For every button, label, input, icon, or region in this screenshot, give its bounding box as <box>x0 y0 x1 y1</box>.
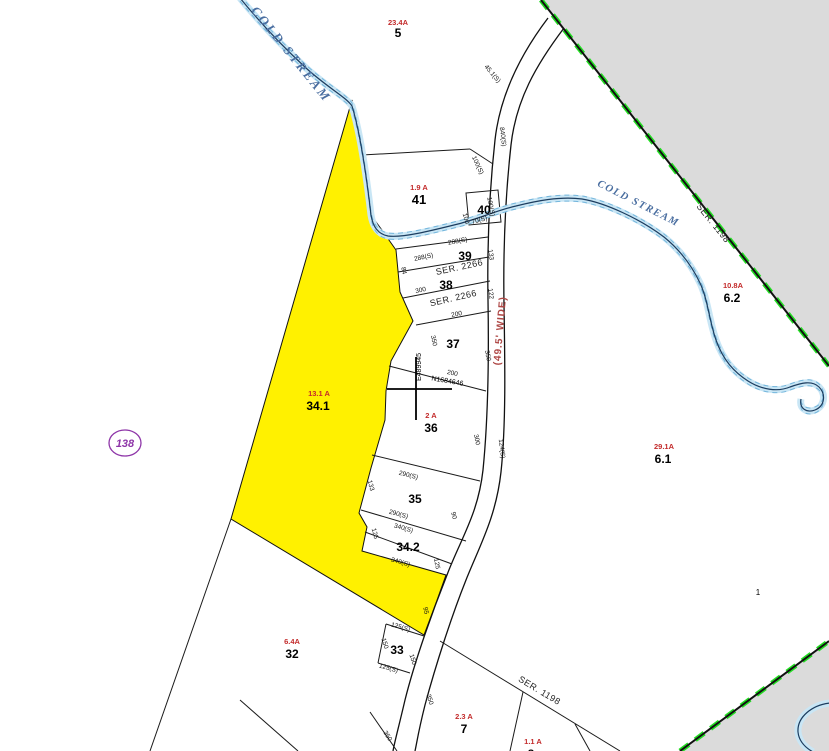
dimension-label: 84 <box>399 266 407 275</box>
dimension-label: 350 <box>429 335 438 347</box>
dimension-label: 350 <box>483 350 492 362</box>
dimension-label: 124(S) <box>497 439 506 459</box>
parcel-number: 34.1 <box>306 399 330 413</box>
parcel-number: 6.1 <box>655 452 672 466</box>
parcel-number: 36 <box>424 421 438 435</box>
parcel-number: 37 <box>446 337 460 351</box>
dimension-label: 133 <box>366 479 376 492</box>
parcel-number: 34.2 <box>396 540 420 554</box>
map-canvas: E489945 N1684646 138 COLD STREAM COLD ST… <box>0 0 829 751</box>
parcel-acreage: 2 A <box>425 411 437 420</box>
parcel-34.1-highlighted[interactable] <box>231 100 446 635</box>
parcel-number: 33 <box>390 643 404 657</box>
dimension-label: 300 <box>472 434 481 446</box>
parcel-number: 39 <box>458 249 472 263</box>
dimension-labels: 45.1(S) 840(S) 100(S) 100 70(S) 100(S) 2… <box>366 64 507 743</box>
parcel-number: 8 <box>528 747 535 751</box>
dimension-label: 150 <box>407 653 417 666</box>
parcel-number: 5 <box>395 26 402 40</box>
dimension-label: 45.1(S) <box>483 64 502 85</box>
parcel-acreage: 2.3 A <box>455 712 473 721</box>
map-sheet-number: 138 <box>116 438 135 450</box>
parcel-number: 38 <box>439 278 453 292</box>
parcel-acreage: 29.1A <box>654 442 675 451</box>
dimension-label: 288(S) <box>448 236 468 246</box>
parcel-number: 41 <box>412 192 426 207</box>
dimension-label: 350 <box>381 730 393 743</box>
dimension-label: 200 <box>446 369 458 378</box>
road-width-label: (49.5' WIDE) <box>492 296 509 366</box>
parcel-number: 6.2 <box>724 291 741 305</box>
dimension-label: 840(S) <box>498 127 507 147</box>
parcel-number: 1 <box>756 588 761 597</box>
parcel-number: 40 <box>477 203 491 217</box>
parcel-acreage: 1.1 A <box>524 737 542 746</box>
grid-easting-label: E489945 <box>416 353 423 381</box>
parcel-acreage: 10.8A <box>723 281 744 290</box>
dimension-label: 350 <box>424 693 434 706</box>
parcel-acreage: 13.1 A <box>308 389 330 398</box>
grid-northing-label: N1684646 <box>431 375 464 388</box>
parcel-acreage: 1.9 A <box>410 183 428 192</box>
dimension-label: 290(S) <box>398 470 419 482</box>
dimension-label: 125(S) <box>378 663 399 675</box>
dimension-label: 200 <box>451 310 463 319</box>
dimension-label: 125 <box>432 558 441 570</box>
dimension-label: 125 <box>370 527 380 540</box>
dimension-label: 90 <box>449 511 458 520</box>
parcel-number: 7 <box>461 722 468 736</box>
parcel-number: 32 <box>285 647 299 661</box>
survey-ref-2266-b: SER. 2266 <box>429 288 478 309</box>
stream-name-top: COLD STREAM <box>248 3 334 105</box>
parcel-acreage: 6.4A <box>284 637 300 646</box>
parcel-number: 35 <box>408 492 422 506</box>
dimension-label: 100(S) <box>470 155 485 176</box>
tax-parcel-map: E489945 N1684646 138 COLD STREAM COLD ST… <box>0 0 829 751</box>
dimension-label: 288(S) <box>413 252 434 263</box>
